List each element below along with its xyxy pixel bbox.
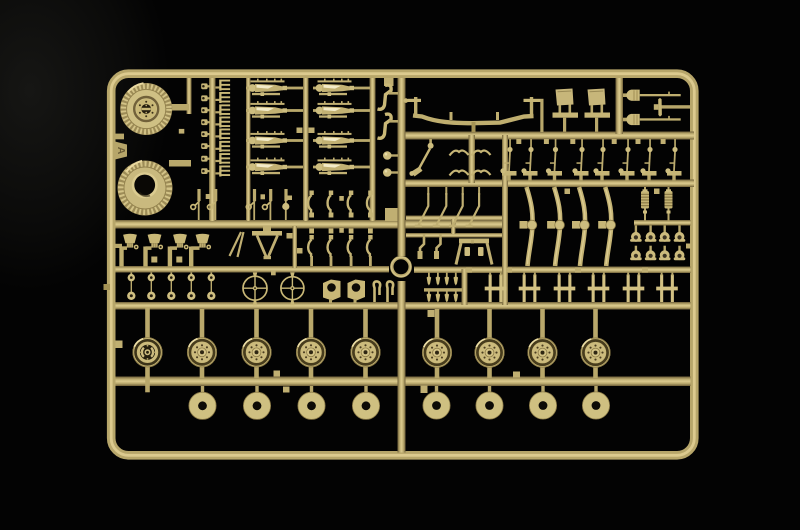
svg-text:A: A — [115, 147, 127, 155]
